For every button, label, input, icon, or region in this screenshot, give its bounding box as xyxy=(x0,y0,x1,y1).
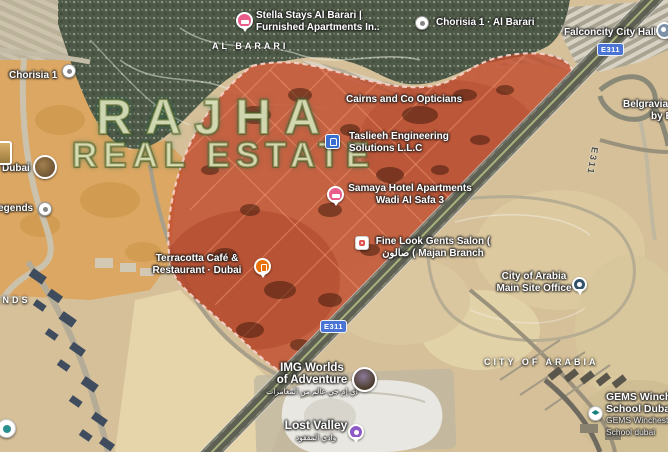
place-label-line: Belgravia xyxy=(623,99,668,111)
place-label-chorisia-1[interactable]: Chorisia 1 xyxy=(9,70,57,82)
place-label-line: of Adventure xyxy=(266,375,358,387)
place-label-line: by E xyxy=(651,111,668,123)
transit-icon-partial[interactable] xyxy=(656,22,668,39)
photo-chip-icon-left-edge[interactable] xyxy=(0,141,12,165)
place-label-line: GEMS Winchester xyxy=(606,392,668,404)
place-label-stella-stays[interactable]: Stella Stays Al Barari | Furnished Apart… xyxy=(256,10,380,33)
area-label-al-barari: AL BARARI xyxy=(212,41,288,53)
office-pin-icon-coa[interactable] xyxy=(572,277,587,292)
school-icon-gems[interactable] xyxy=(588,406,603,421)
place-label-line: Furnished Apartments In.. xyxy=(256,22,380,34)
place-label-line: Solutions L.L.C xyxy=(349,143,449,155)
place-label-line: Fine Look Gents Salon ( xyxy=(370,236,496,248)
place-label-coa-office[interactable]: City of Arabia Main Site Office xyxy=(486,271,582,294)
area-label-legends: LEGENDS xyxy=(0,295,31,307)
place-label-line: Falconcity City Hall xyxy=(564,27,656,39)
location-dot-icon-chorisia-1[interactable] xyxy=(62,64,76,78)
place-label-line: Wadi Al Safa 3 xyxy=(348,195,472,207)
place-label-line: Chorisia 1 xyxy=(9,70,57,82)
place-label-line: GEMS Winchester xyxy=(606,415,668,427)
place-label-line: Terracotta Café & xyxy=(136,253,258,265)
place-label-line: Taslieeh Engineering xyxy=(349,131,449,143)
place-label-img-worlds[interactable]: IMG Worlds of Adventure آي إم جي عالم من… xyxy=(266,363,358,398)
place-label-fine-look-salon[interactable]: Fine Look Gents Salon ( صالون ( Majan Br… xyxy=(370,236,496,259)
location-dot-icon-legends[interactable] xyxy=(38,202,52,216)
place-label-line-arabic: آي إم جي عالم من المغامرات xyxy=(266,386,358,398)
place-label-line: School dubai xyxy=(606,427,668,439)
road-shield-e311-top: E311 xyxy=(597,43,624,56)
place-label-line: Chorisia 1 · Al Barari xyxy=(436,17,535,29)
place-label-line: City of Arabia xyxy=(486,271,582,283)
place-label-line: School Dubai xyxy=(606,404,668,416)
photo-thumbnail-icon-dubai[interactable] xyxy=(33,155,57,179)
salon-badge-icon-fine-look[interactable] xyxy=(355,236,369,250)
place-label-line: Samaya Hotel Apartments xyxy=(348,183,472,195)
area-label-city-of-arabia: CITY OF ARABIA xyxy=(484,357,599,369)
place-label-terracotta-cafe[interactable]: Terracotta Café & Restaurant · Dubai xyxy=(136,253,258,276)
place-label-line: IMG Worlds xyxy=(266,363,358,375)
place-label-line: Cairns and Co Opticians xyxy=(346,94,462,106)
restaurant-pin-icon-terracotta[interactable] xyxy=(254,258,271,275)
place-label-line: Main Site Office xyxy=(486,283,582,295)
hotel-pin-icon-stella[interactable] xyxy=(236,12,253,29)
place-label-line: صالون ( Majan Branch xyxy=(370,248,496,260)
theme-park-icon-lost-valley[interactable] xyxy=(348,424,364,440)
place-label-legends-poi[interactable]: Legends xyxy=(0,203,33,215)
location-dot-icon-chorisia-al-barari[interactable] xyxy=(415,16,429,30)
hotel-pin-icon-samaya[interactable] xyxy=(327,186,344,203)
teal-dot-icon xyxy=(3,425,11,433)
place-label-samaya-hotel[interactable]: Samaya Hotel Apartments Wadi Al Safa 3 xyxy=(348,183,472,206)
place-label-cairns-opticians[interactable]: Cairns and Co Opticians xyxy=(346,94,462,106)
place-label-taslieeh[interactable]: Taslieeh Engineering Solutions L.L.C xyxy=(349,131,449,154)
place-label-line-arabic: وادي المفقود xyxy=(284,432,348,444)
place-label-gems-school[interactable]: GEMS Winchester School Dubai GEMS Winche… xyxy=(606,392,668,438)
place-label-line: Lost Valley xyxy=(284,420,348,432)
photo-thumbnail-icon-img-worlds[interactable] xyxy=(352,367,377,392)
business-badge-icon-taslieeh[interactable] xyxy=(325,134,340,149)
place-label-lost-valley[interactable]: Lost Valley وادي المفقود xyxy=(284,420,348,443)
place-label-belgravia[interactable]: Belgravia by E xyxy=(623,99,668,122)
place-label-falconcity-city-hall[interactable]: Falconcity City Hall xyxy=(564,27,656,39)
place-label-chorisia-al-barari[interactable]: Chorisia 1 · Al Barari xyxy=(436,17,535,29)
map-viewport[interactable]: RAJHA REAL ESTATE E311 E311 E311 AL BARA… xyxy=(0,0,668,452)
road-shield-e311-bottom: E311 xyxy=(320,320,347,333)
place-label-line: Stella Stays Al Barari | xyxy=(256,10,380,22)
place-label-line: Legends xyxy=(0,203,33,215)
place-label-line: Restaurant · Dubai xyxy=(136,265,258,277)
